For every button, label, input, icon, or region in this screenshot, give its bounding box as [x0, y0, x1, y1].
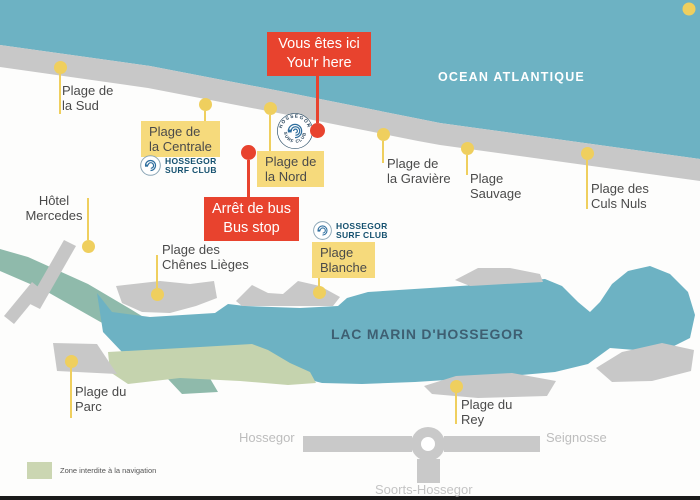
bus-stop-box: Arrêt de bus Bus stop: [204, 197, 299, 241]
surf-club-wave-icon: [140, 155, 161, 176]
parc-beach-shape: [53, 343, 117, 374]
road-south: [417, 459, 440, 483]
label-plage-sud: Plage de la Sud: [62, 83, 113, 113]
road-west: [303, 436, 412, 452]
label-plage-chenes-lieges: Plage des Chênes Lièges: [162, 242, 249, 272]
ocean-label: OCEAN ATLANTIQUE: [438, 70, 585, 84]
pin-bus-stop: [241, 145, 256, 199]
road-east: [444, 436, 540, 452]
you-are-here-box: Vous êtes ici You'r here: [267, 32, 371, 76]
surf-club-logo-centrale: HOSSEGOR SURF CLUB: [140, 155, 217, 176]
pin-plage-sauvage: [461, 142, 474, 175]
label-plage-rey: Plage du Rey: [461, 397, 512, 427]
label-plage-parc: Plage du Parc: [75, 384, 126, 414]
north-beach-strip-west: [116, 281, 217, 313]
hossegor-beach-map: HOSSEGOR SURF CLUB Plage de la Sud Plage…: [0, 0, 700, 500]
label-plage-centrale: Plage de la Centrale: [141, 121, 220, 157]
label-plage-nord: Plage de la Nord: [257, 151, 324, 187]
southeast-beach-shape: [596, 343, 694, 382]
label-plage-culs-nuls: Plage des Culs Nuls: [591, 181, 649, 211]
roundabout-center: [421, 437, 435, 451]
surf-club-logo-blanche: HOSSEGOR SURF CLUB: [313, 221, 388, 240]
surf-club-name: HOSSEGOR SURF CLUB: [336, 222, 388, 240]
legend: Zone interdite à la navigation: [27, 462, 156, 479]
road-label-seignosse: Seignosse: [546, 430, 607, 445]
pin-plage-nord: [264, 102, 277, 154]
surf-club-name: HOSSEGOR SURF CLUB: [165, 157, 217, 175]
pin-you-are-here: [310, 72, 325, 138]
surf-club-wave-icon: [313, 221, 332, 240]
label-plage-graviere: Plage de la Gravière: [387, 156, 451, 186]
label-plage-sauvage: Plage Sauvage: [470, 171, 521, 201]
surf-club-badge-icon: HOSSEGOR SURF CLUB: [276, 112, 314, 150]
lake-label: LAC MARIN D'HOSSEGOR: [331, 326, 524, 342]
bottom-bar: [0, 496, 700, 500]
road-label-soorts-hossegor: Soorts-Hossegor: [375, 482, 473, 497]
label-plage-blanche: Plage Blanche: [312, 242, 375, 278]
legend-zone-label: Zone interdite à la navigation: [60, 466, 156, 475]
legend-zone-swatch: [27, 462, 52, 479]
road-label-hossegor: Hossegor: [239, 430, 295, 445]
unlabeled-pin: [683, 3, 696, 16]
label-hotel-mercedes: Hôtel Mercedes: [18, 193, 90, 223]
